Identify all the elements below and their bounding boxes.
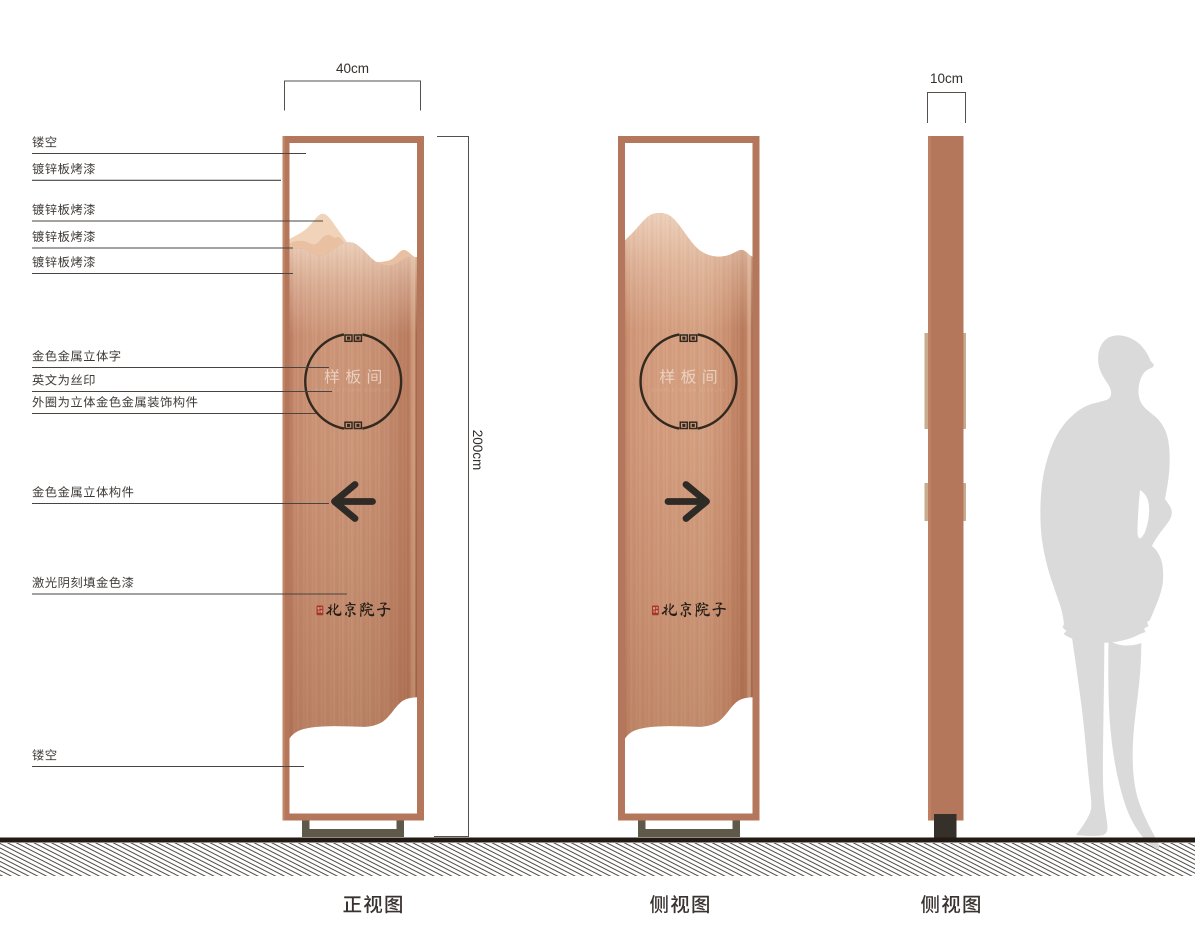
svg-text:40cm: 40cm <box>336 61 369 76</box>
svg-text:200cm: 200cm <box>470 430 485 471</box>
svg-text:SAMPLE ROOM DISPLAY: SAMPLE ROOM DISPLAY <box>651 388 726 393</box>
svg-text:10cm: 10cm <box>930 71 963 86</box>
